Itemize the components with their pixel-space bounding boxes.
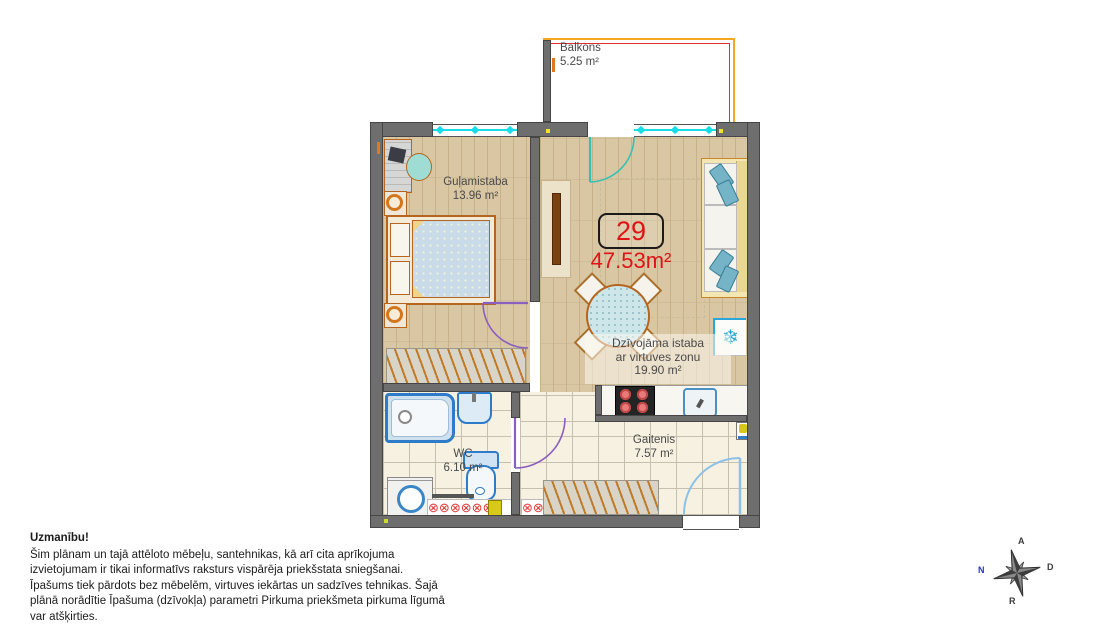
balcony-door-arc [590, 137, 634, 182]
bedroom-area: 13.96 m² [408, 190, 543, 204]
wc-door-arc [515, 418, 565, 468]
disclaimer-title: Uzmanību! [30, 531, 448, 547]
compass-north-label: N [978, 565, 985, 575]
wc-name: WC [418, 448, 508, 462]
disclaimer: Uzmanību! Šim plānam un tajā attēloto mē… [30, 531, 448, 624]
living-room-name-line1: Dzīvojāma istaba [585, 337, 731, 351]
compass-east-label: A [1018, 536, 1025, 546]
disclaimer-body: Šim plānam un tajā attēloto mēbeļu, sant… [30, 548, 448, 624]
hallway-label: Gaitenis 7.57 m² [608, 434, 700, 461]
bedroom-label: Guļamistaba 13.96 m² [408, 176, 543, 203]
apartment-number-box: 29 [598, 213, 664, 249]
living-room-name-line2: ar virtuves zonu [585, 351, 731, 365]
floor-plan-page: Balkons 5.25 m² [0, 0, 1110, 624]
wc-area: 6.10 m² [418, 462, 508, 476]
entrance-door-arc [684, 458, 740, 514]
hallway-name: Gaitenis [608, 434, 700, 448]
bedroom-door-arc [483, 303, 528, 348]
bedroom-name: Guļamistaba [408, 176, 543, 190]
apartment-total-area: 47.53m² [570, 248, 692, 274]
apartment-number: 29 [616, 218, 646, 245]
wc-label: WC 6.10 m² [418, 448, 508, 475]
compass-west-label: R [1009, 596, 1016, 606]
compass-south-label: D [1047, 562, 1054, 572]
compass: N A D R [975, 536, 1055, 610]
living-room-label: Dzīvojāma istaba ar virtuves zonu 19.90 … [585, 337, 731, 378]
living-room-area: 19.90 m² [585, 364, 731, 378]
hallway-area: 7.57 m² [608, 448, 700, 462]
